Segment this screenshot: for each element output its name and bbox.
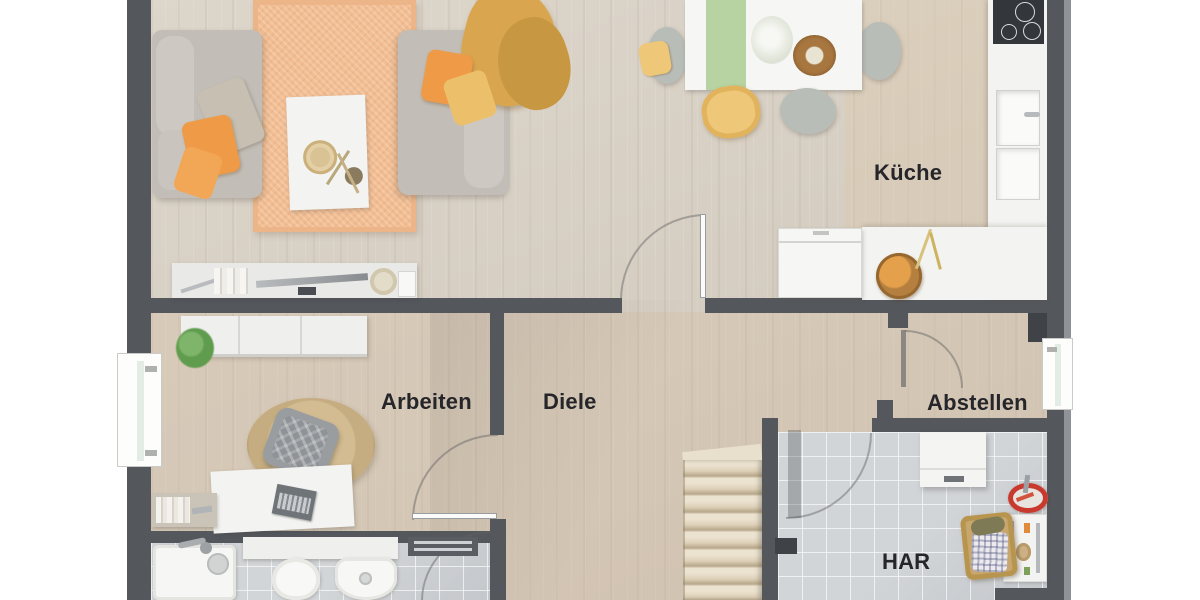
wall-har-left — [762, 418, 778, 600]
room-label-abstellen: Abstellen — [927, 390, 1028, 416]
caddy-brush — [1023, 475, 1030, 494]
stair-treads — [683, 460, 762, 600]
kitchen-fruit-bowl — [876, 253, 922, 299]
sideboard-tv-bar — [256, 273, 368, 288]
sideboard-tv-base — [298, 287, 316, 295]
pegboard-wrench-2 — [1036, 523, 1040, 573]
door-leaf-arbeiten — [412, 513, 497, 519]
shelf-stapler — [192, 506, 213, 515]
sideboard-plate — [370, 268, 397, 295]
staircase — [683, 448, 762, 600]
window-left-glass — [137, 361, 144, 461]
bathroom-shelf — [243, 537, 398, 559]
office-desk — [210, 464, 354, 533]
door-leaf-abstellen — [901, 330, 906, 387]
pegboard-bit-green — [1024, 567, 1030, 575]
room-label-arbeiten: Arbeiten — [381, 389, 472, 415]
cabinet-seam-2 — [300, 316, 302, 354]
basket-cloth — [971, 531, 1008, 572]
kitchen-sink-upper — [996, 90, 1040, 146]
wall-abstellen-stub-bottom — [877, 400, 893, 432]
table-runner-green — [706, 0, 746, 90]
towel-bar-2 — [414, 548, 472, 551]
sideboard-books — [214, 268, 248, 294]
kitchen-sink-lower — [996, 148, 1040, 200]
office-chair-cushion — [270, 414, 331, 474]
towel-bar-1 — [414, 541, 472, 544]
floor-plan: Küche Arbeiten Diele Abstellen HAR — [0, 0, 1200, 600]
office-laptop — [272, 484, 317, 521]
coffee-table-tray — [303, 140, 338, 175]
kitchen-freezer — [778, 228, 862, 298]
room-label-kueche: Küche — [874, 160, 942, 186]
window-left-latch-bottom — [145, 450, 157, 456]
pegboard-rope-coil — [1016, 543, 1031, 561]
wall-bottom-fragment — [995, 588, 1047, 600]
shower-drain — [207, 553, 229, 575]
door-leaf-har — [788, 430, 801, 518]
red-tool-caddy — [1008, 483, 1048, 513]
dining-chair-left-cushion — [637, 40, 672, 78]
wall-abstellen-stub-top — [888, 313, 908, 328]
dining-chair-right — [857, 22, 901, 80]
boiler-seam — [920, 468, 986, 470]
wall-har-top — [872, 418, 1047, 432]
freezer-lid-seam — [779, 241, 861, 243]
wall-left-exterior — [127, 0, 151, 600]
window-right-glass — [1055, 344, 1061, 406]
window-right-latch — [1047, 347, 1057, 352]
tv-sideboard — [172, 263, 417, 298]
sideboard-box — [398, 271, 416, 297]
wall-main-right — [705, 298, 1047, 313]
wall-right-outer-face — [1064, 0, 1071, 600]
dining-table — [685, 0, 862, 90]
boiler-unit — [920, 432, 986, 487]
wall-har-left-stub — [775, 538, 797, 554]
window-right — [1042, 338, 1073, 410]
pegboard-bit-orange — [1024, 523, 1030, 533]
office-low-shelf — [152, 493, 217, 527]
wall-main-left — [151, 298, 622, 313]
shelf-books — [156, 497, 190, 523]
window-left-latch-top — [145, 366, 157, 372]
wall-arbeiten-diele-upper — [490, 313, 504, 435]
cooktop-burner-3 — [1023, 22, 1041, 40]
kitchen-faucet — [1024, 112, 1040, 117]
room-label-diele: Diele — [543, 389, 597, 415]
shower-tray — [153, 545, 236, 600]
caddy-pliers — [1016, 492, 1034, 502]
towel-radiator — [408, 537, 478, 556]
table-bowl-wreath — [793, 35, 836, 76]
coffee-table — [286, 95, 369, 211]
room-label-har: HAR — [882, 549, 930, 575]
shower-head — [200, 542, 212, 554]
kitchen-cooktop — [993, 0, 1044, 44]
door-leaf-living-diele — [700, 214, 706, 298]
boiler-vent — [944, 476, 964, 482]
freezer-handle — [813, 231, 829, 235]
laptop-keyboard — [277, 492, 311, 514]
bathroom-sink — [335, 558, 397, 600]
office-plant — [176, 328, 214, 368]
wall-arbeiten-diele-lower — [490, 519, 506, 600]
table-flowers-white — [751, 16, 793, 64]
cabinet-seam-1 — [238, 316, 240, 354]
window-left — [117, 353, 162, 467]
sink-drain — [359, 572, 372, 585]
toilet — [272, 558, 320, 600]
cooktop-burner-2 — [1001, 24, 1017, 40]
laundry-basket — [960, 511, 1018, 580]
cooktop-burner-1 — [1015, 2, 1035, 22]
